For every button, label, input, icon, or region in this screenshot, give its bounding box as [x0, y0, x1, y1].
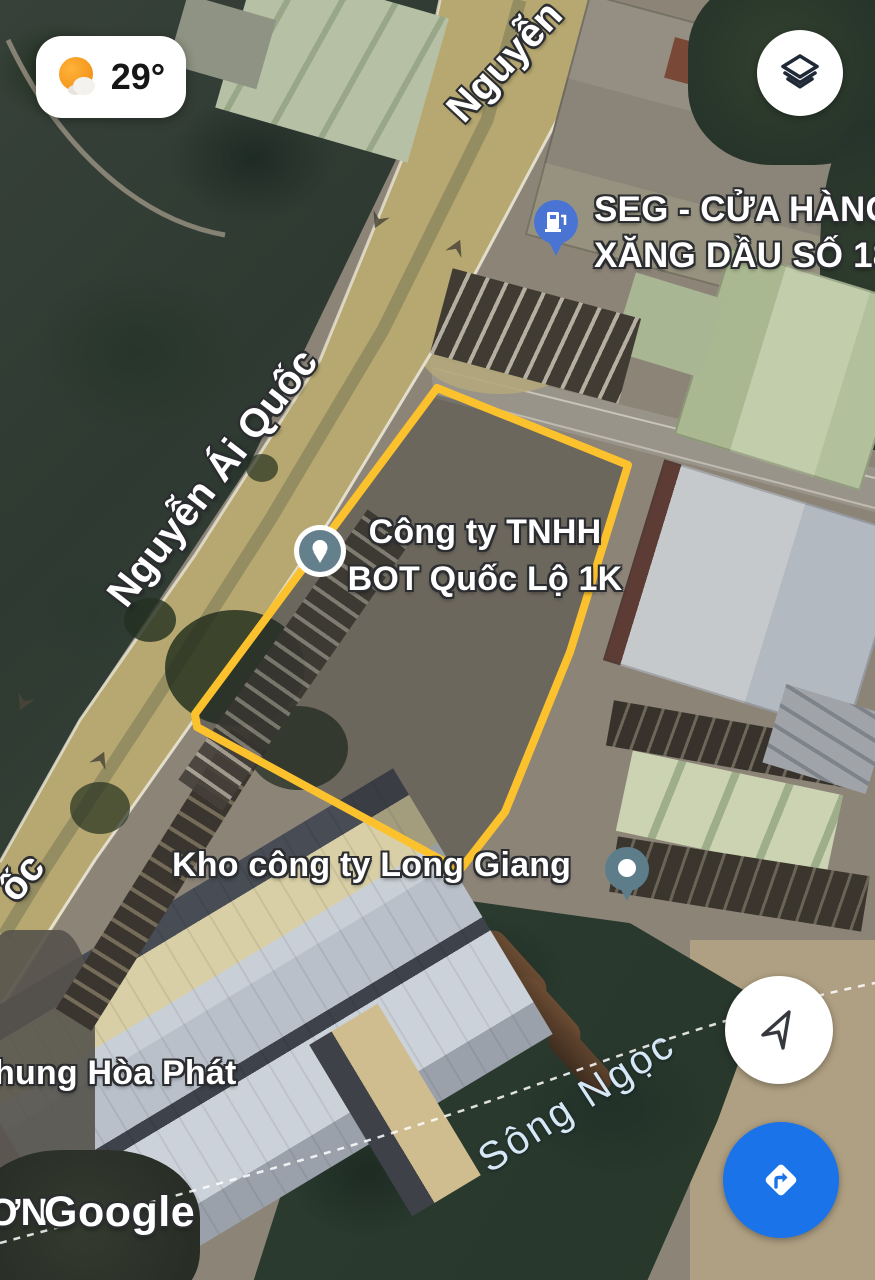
company-label-line1: Công ty TNHH: [340, 513, 630, 552]
cutoff-label: ƠN: [0, 1192, 48, 1235]
google-watermark: Google: [44, 1188, 195, 1237]
road-label-top: Nguyễn: [438, 0, 572, 131]
map-canvas[interactable]: Nguyễn Nguyễn Ái Quốc ốc SEG - CỬA HÀNG …: [0, 0, 875, 1280]
grey-roof-building: [603, 459, 875, 734]
truck-row: [430, 268, 641, 403]
sun-behind-cloud-icon: [57, 55, 103, 99]
temperature-value: 29°: [111, 56, 165, 98]
navigation-arrow-icon: [750, 1001, 808, 1059]
my-location-button[interactable]: [725, 976, 833, 1084]
gas-station-label-line1: SEG - CỬA HÀNG: [594, 190, 875, 230]
warehouse-company-label[interactable]: Kho công ty Long Giang: [172, 846, 571, 885]
gas-station-label[interactable]: SEG - CỬA HÀNG XĂNG DẦU SỐ 18: [594, 190, 875, 276]
directions-button[interactable]: [723, 1122, 839, 1238]
gas-station-label-line2: XĂNG DẦU SỐ 18: [594, 236, 875, 276]
gas-station-pin[interactable]: [532, 198, 580, 265]
company-label-line2: BOT Quốc Lộ 1K: [340, 560, 630, 599]
factory-label-cut[interactable]: hung Hòa Phát: [0, 1054, 236, 1093]
warehouse-dot-marker[interactable]: [604, 846, 650, 909]
weather-chip[interactable]: 29°: [36, 36, 186, 118]
dot-icon: [618, 859, 636, 877]
company-place-marker[interactable]: [293, 524, 347, 583]
directions-turn-icon: [750, 1149, 812, 1211]
layers-icon: [777, 50, 823, 96]
road-label-left-cut: ốc: [0, 845, 54, 910]
green-roof-building: [674, 248, 875, 491]
layers-button[interactable]: [757, 30, 843, 116]
property-outline: [195, 388, 628, 870]
company-label[interactable]: Công ty TNHH BOT Quốc Lộ 1K: [340, 513, 630, 599]
